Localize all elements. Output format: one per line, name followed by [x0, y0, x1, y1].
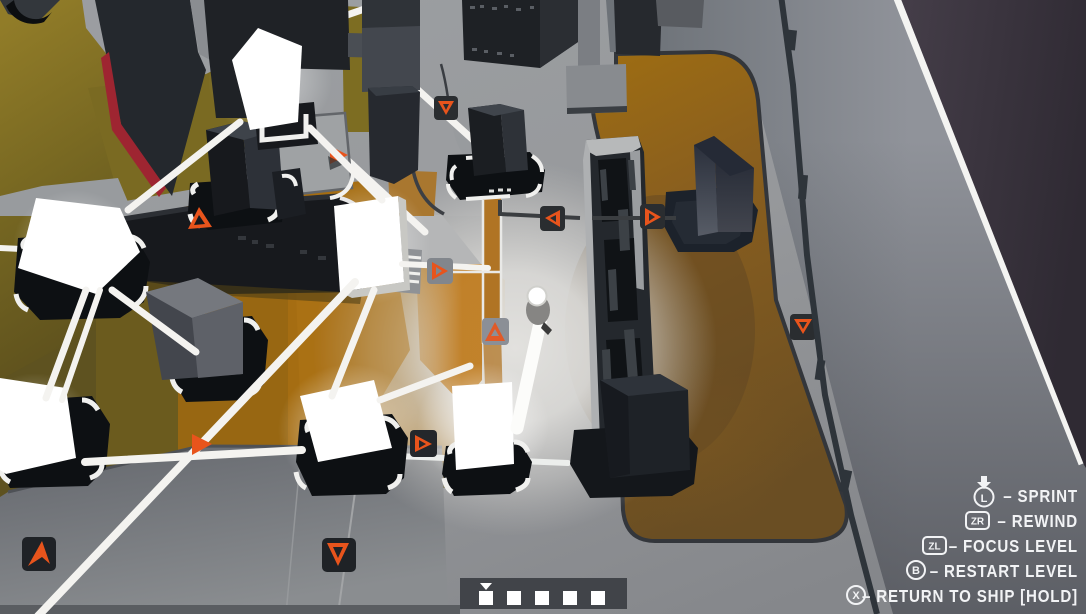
svg-text:X: X — [852, 590, 860, 602]
svg-text:L: L — [981, 493, 988, 505]
svg-text:– REWIND: – REWIND — [997, 511, 1078, 532]
svg-text:ZR: ZR — [971, 517, 985, 528]
svg-text:B: B — [912, 565, 920, 577]
svg-text:– FOCUS LEVEL: – FOCUS LEVEL — [949, 536, 1078, 557]
svg-text:– RETURN TO SHIP [HOLD]: – RETURN TO SHIP [HOLD] — [862, 586, 1078, 607]
svg-text:– RESTART LEVEL: – RESTART LEVEL — [930, 561, 1078, 582]
svg-text:– SPRINT: – SPRINT — [1003, 486, 1078, 507]
svg-text:ZL: ZL — [928, 542, 940, 553]
